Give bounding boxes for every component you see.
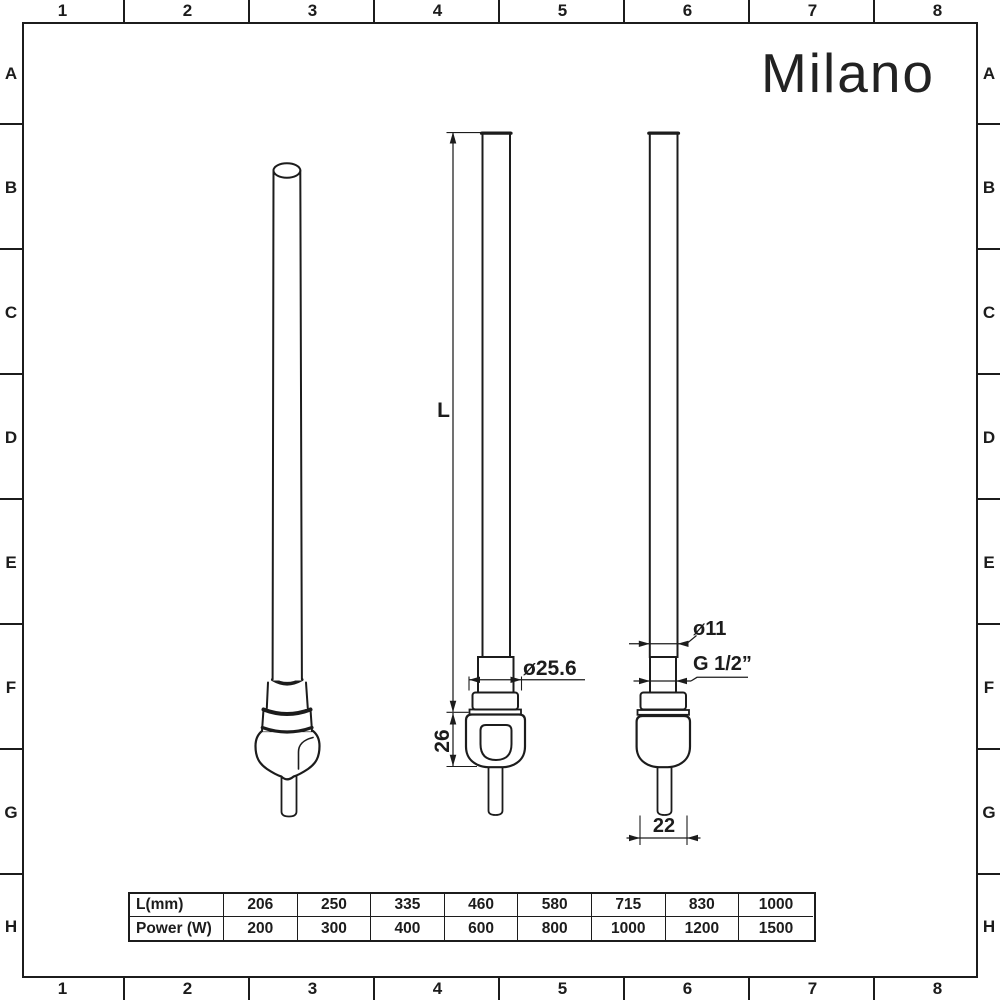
value-cell: 580 (518, 894, 592, 917)
value-cell: 1200 (666, 917, 740, 940)
dimension-length (447, 132, 482, 712)
value-cell: 1000 (739, 894, 813, 917)
dimension-label-element-diameter: ø11 (693, 618, 726, 641)
dimension-label-body-height: 26 (431, 724, 455, 758)
value-cell: 800 (518, 917, 592, 940)
view-front (466, 133, 525, 816)
dimension-label-length: L (428, 399, 450, 423)
value-cell: 400 (371, 917, 445, 940)
view-side (637, 133, 690, 816)
view-perspective (256, 163, 320, 816)
value-cell: 250 (298, 894, 372, 917)
technical-drawing (0, 0, 1000, 1000)
dimension-label-fitting-diameter: ø25.6 (523, 657, 577, 681)
value-cell: 460 (445, 894, 519, 917)
value-cell: 1500 (739, 917, 813, 940)
value-cell: 300 (298, 917, 372, 940)
value-cell: 600 (445, 917, 519, 940)
dimension-label-body-width: 22 (647, 815, 681, 838)
spec-table: L(mm) 206 250 335 460 580 715 830 1000 P… (128, 892, 816, 942)
value-cell: 715 (592, 894, 666, 917)
value-cell: 200 (224, 917, 298, 940)
row-header-cell: Power (W) (130, 917, 224, 940)
value-cell: 1000 (592, 917, 666, 940)
value-cell: 206 (224, 894, 298, 917)
row-header-cell: L(mm) (130, 894, 224, 917)
value-cell: 830 (666, 894, 740, 917)
dimension-label-thread: G 1/2” (693, 653, 752, 676)
drawing-sheet: 1 2 3 4 5 6 7 8 1 2 3 4 5 6 7 8 A B C D … (0, 0, 1000, 1000)
value-cell: 335 (371, 894, 445, 917)
